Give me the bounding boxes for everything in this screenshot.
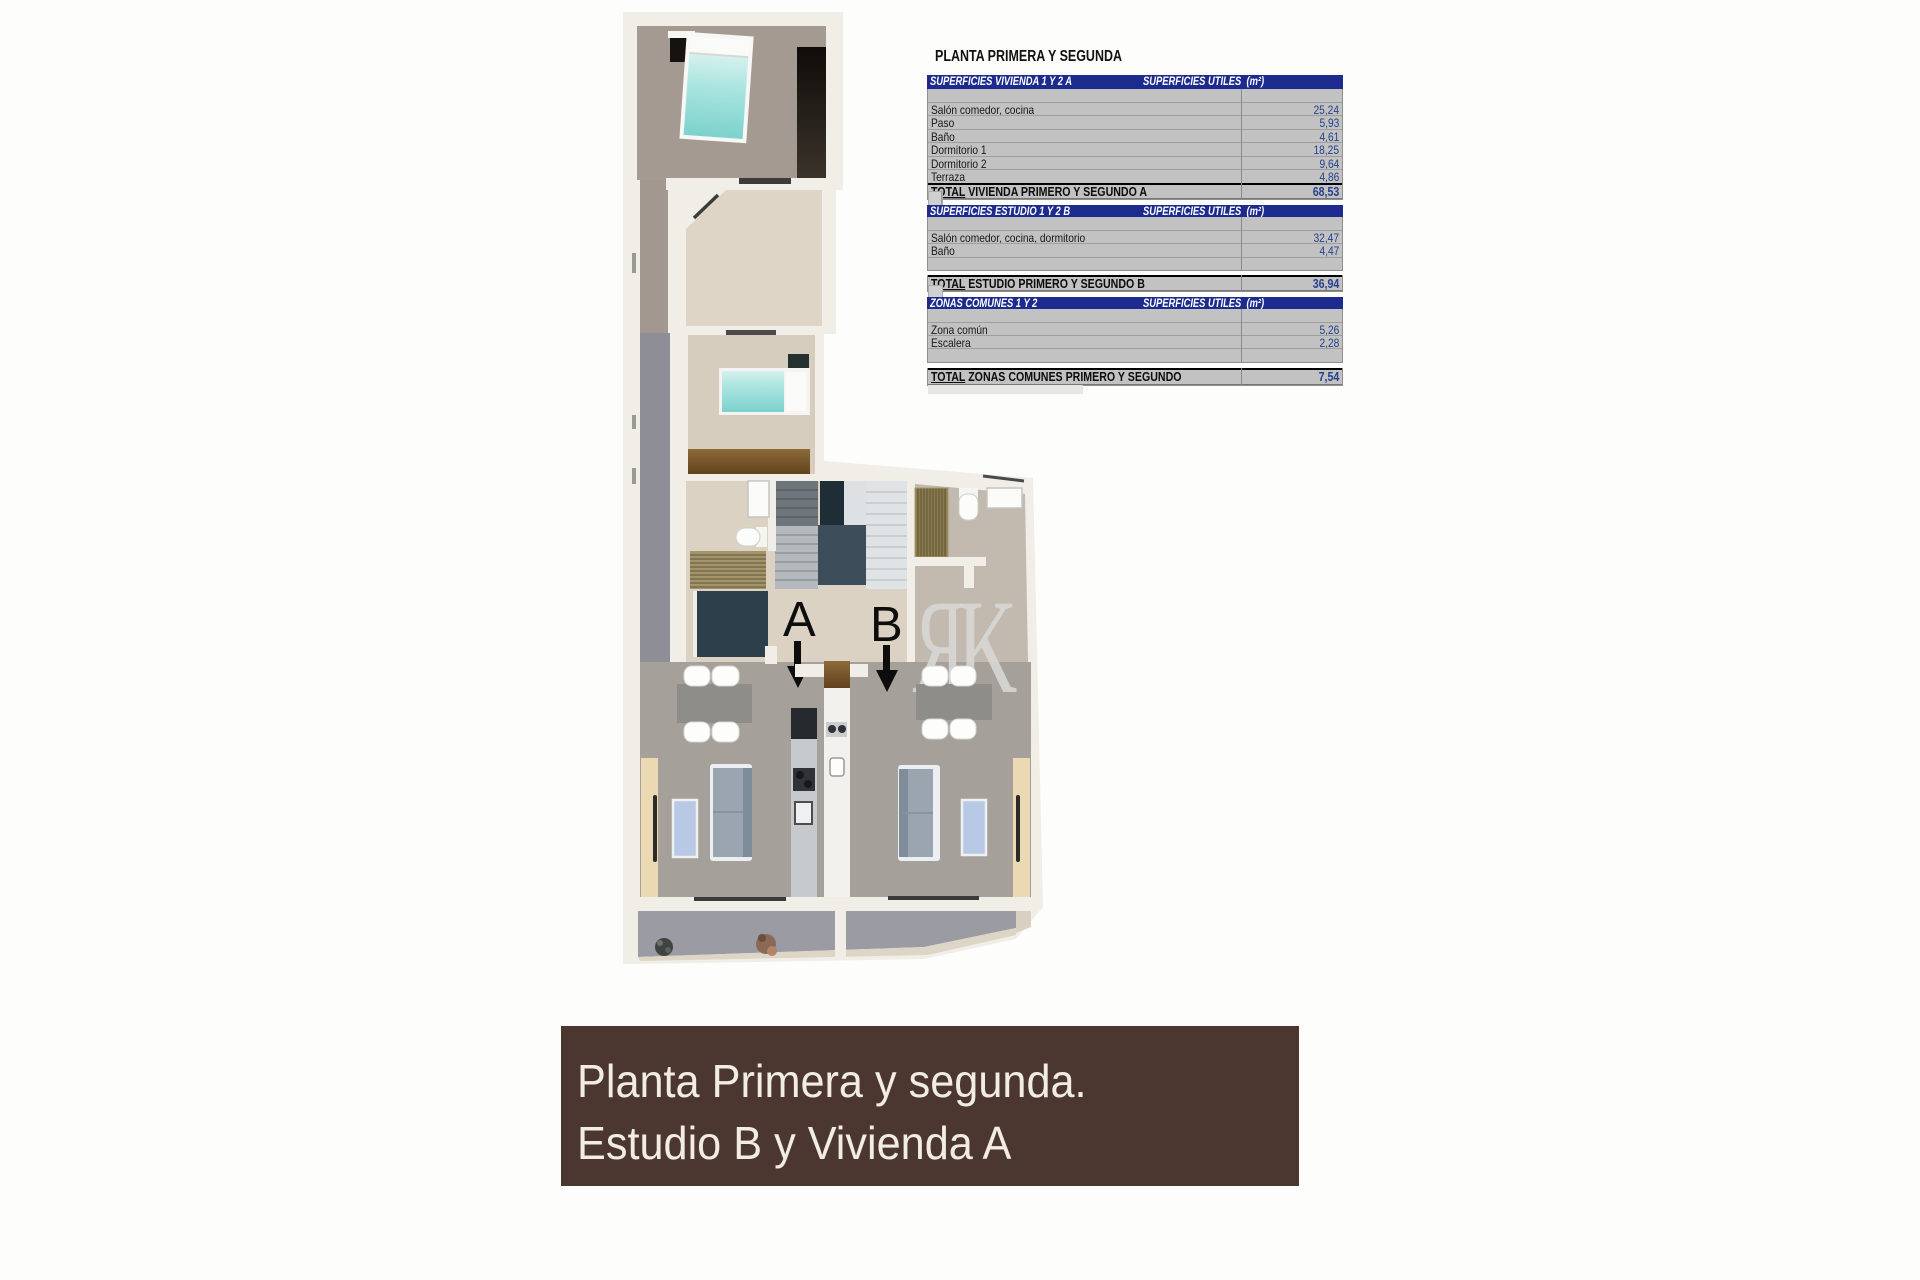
svg-text:A: A: [783, 593, 816, 647]
svg-text:B: B: [870, 598, 903, 652]
